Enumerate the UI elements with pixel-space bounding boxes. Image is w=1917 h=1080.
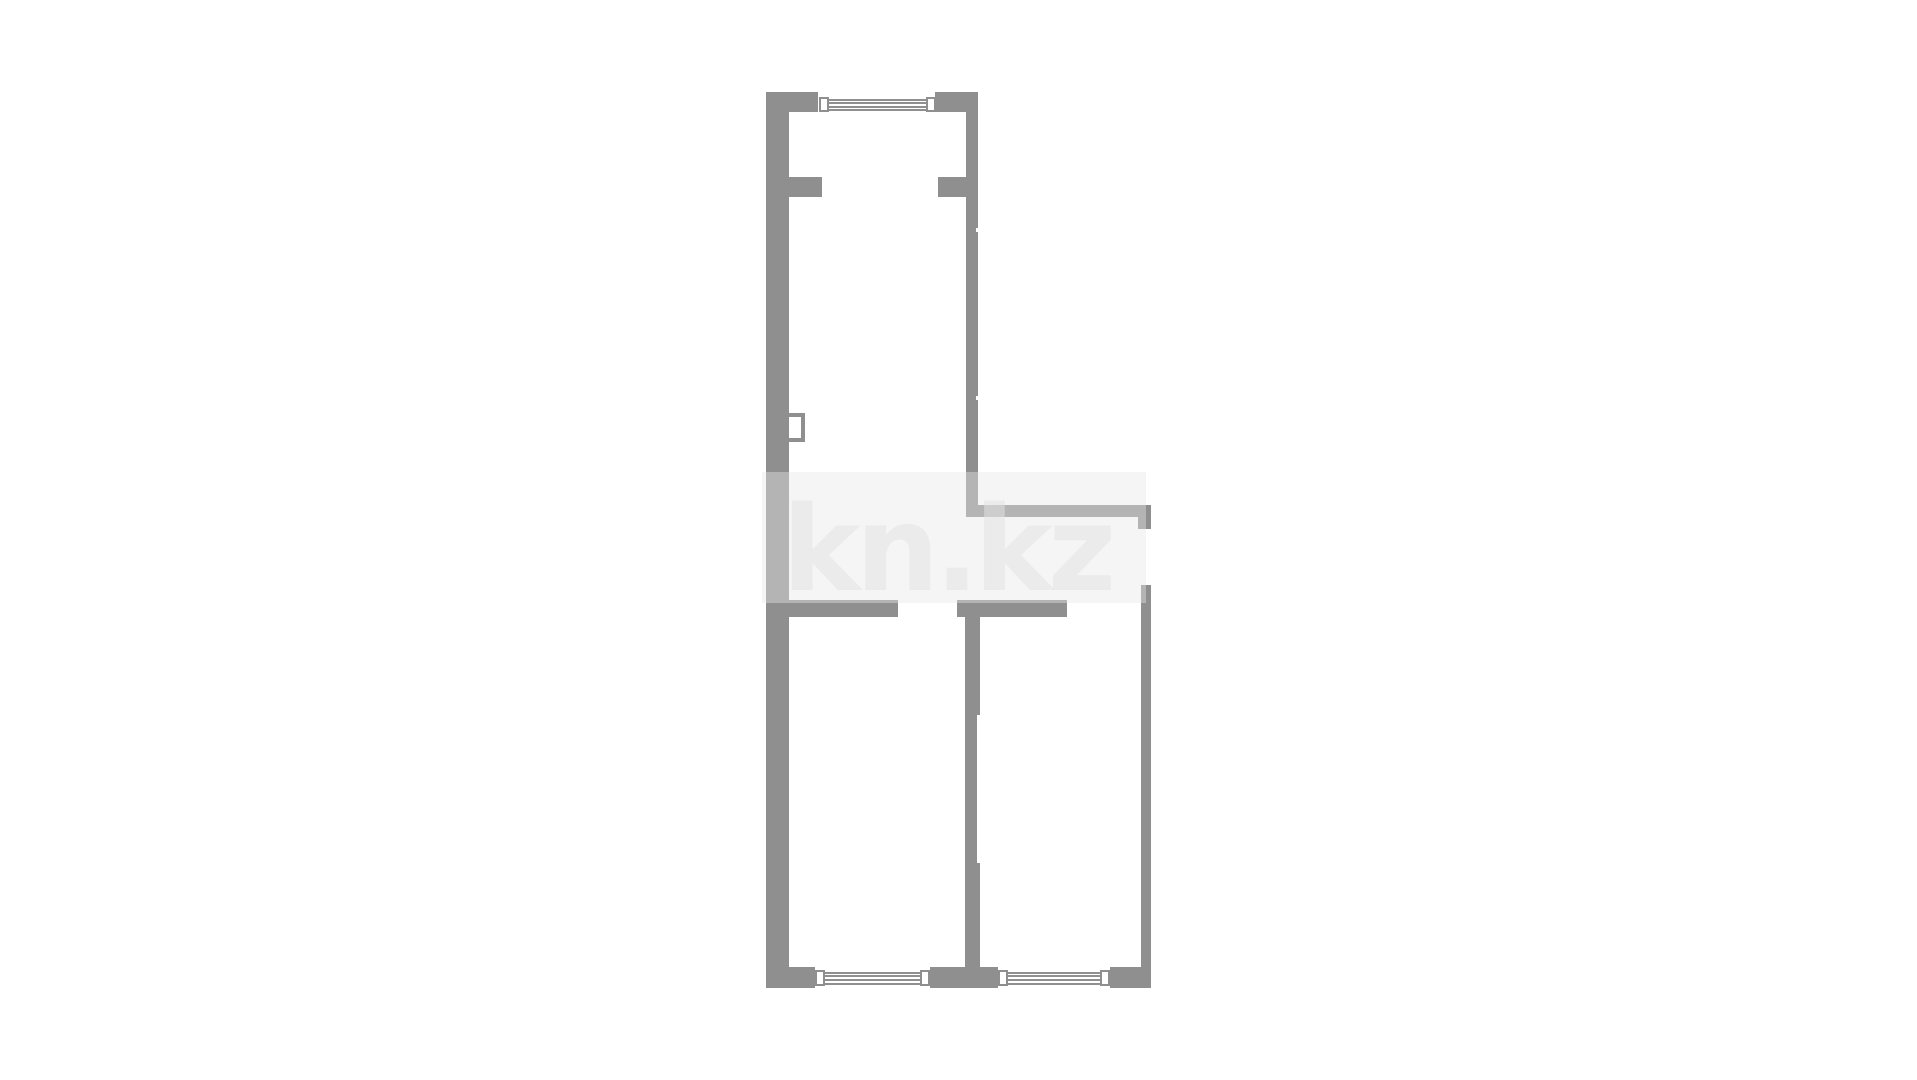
window-cap (1100, 970, 1110, 986)
hall-right-wall (966, 112, 978, 517)
window-cap (926, 97, 936, 112)
bottom-wall-center-block (930, 967, 998, 988)
hall-doorway-stub-left (789, 177, 822, 197)
frame-notch-upper (976, 228, 979, 232)
bottom-wall-right-block (1110, 967, 1151, 988)
window-band (829, 99, 926, 111)
watermark-text: kn.kz (782, 490, 1111, 608)
window-band (1008, 972, 1100, 985)
divider-door-notch (977, 715, 980, 863)
bottom-left-window (815, 970, 930, 986)
window-cap (819, 97, 829, 112)
window-cap (998, 970, 1008, 986)
duct-box (789, 413, 805, 442)
top-window (819, 97, 936, 112)
window-cap (815, 970, 825, 986)
bottom-wall-left-block (766, 967, 815, 988)
hall-doorway-stub-right (938, 177, 966, 197)
floor-plan-image: kn.kz (0, 0, 1917, 1080)
room-lower-left (789, 617, 965, 967)
window-cap (920, 970, 930, 986)
top-wall-right-segment (935, 92, 978, 112)
floor-plan: kn.kz (0, 0, 1917, 1080)
bottom-right-window (998, 970, 1110, 986)
room-lower-right (980, 617, 1141, 967)
window-band (825, 972, 920, 985)
right-exterior-wall (1141, 585, 1151, 988)
frame-notch-lower (976, 396, 979, 400)
